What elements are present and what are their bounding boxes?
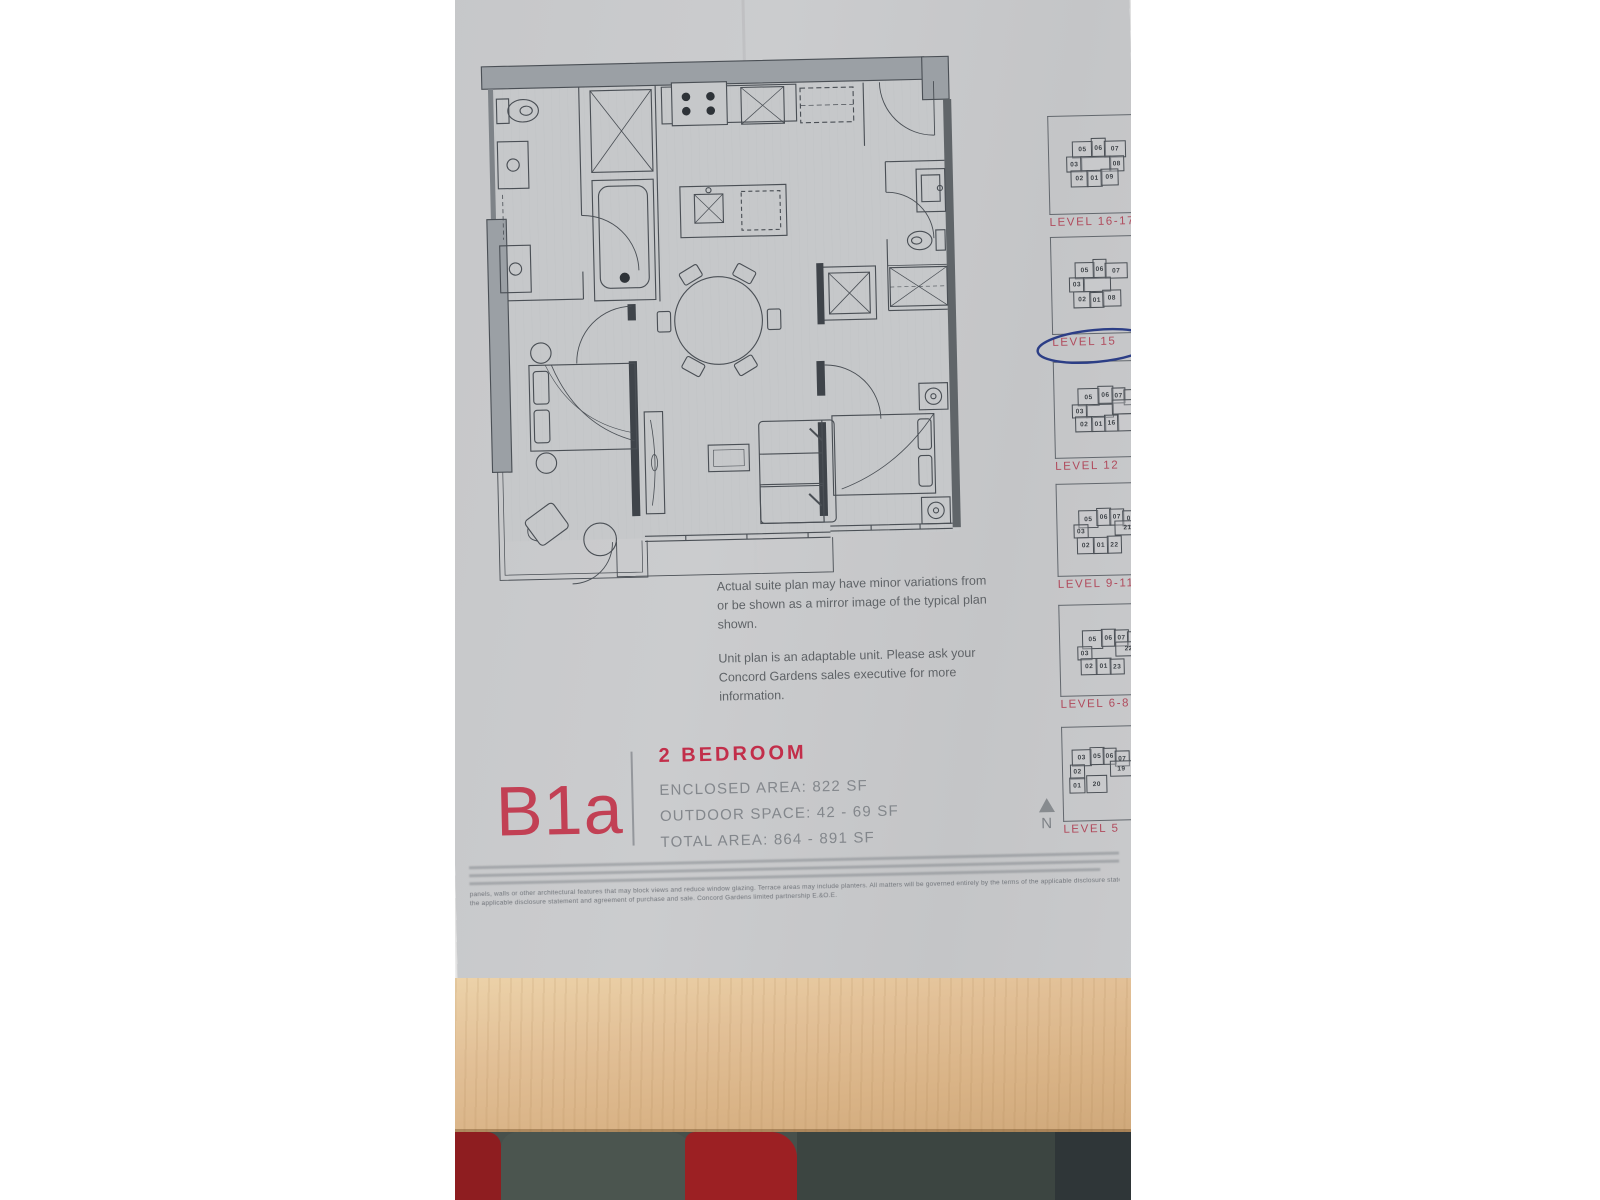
north-arrow-icon bbox=[1039, 798, 1055, 812]
unit-box-21: 21 bbox=[1114, 520, 1131, 536]
floor-plan-drawing bbox=[479, 54, 975, 587]
red-fabric-left bbox=[455, 1132, 501, 1200]
level-diagram-level-6-8: 050607080322020123 bbox=[1058, 603, 1131, 697]
level-diagram-level-15: 05060703020108 bbox=[1050, 235, 1131, 335]
wood-grain bbox=[455, 978, 1131, 1134]
level-label-level-16-17: LEVEL 16-17 bbox=[1049, 215, 1131, 229]
red-fabric-center bbox=[685, 1132, 797, 1200]
unit-box-core bbox=[1117, 413, 1131, 431]
note-adaptable: Unit plan is an adaptable unit. Please a… bbox=[718, 644, 991, 706]
unit-spec-line: TOTAL AREA: 864 - 891 SF bbox=[660, 825, 899, 856]
brochure-page: Actual suite plan may have minor variati… bbox=[455, 0, 1131, 996]
unit-box-19: 19 bbox=[1110, 760, 1131, 777]
unit-box-01: 01 bbox=[1069, 777, 1085, 793]
level-diagram-level-16-17: 0506070308020109 bbox=[1047, 114, 1131, 215]
note-variations: Actual suite plan may have minor variati… bbox=[717, 571, 990, 633]
plan-code: B1a bbox=[495, 774, 624, 847]
north-label: N bbox=[1032, 815, 1062, 833]
level-diagram-level-12: 05060703020116 bbox=[1053, 360, 1131, 459]
unit-info: 2 BEDROOM ENCLOSED AREA: 822 SFOUTDOOR S… bbox=[658, 740, 899, 856]
unit-box-23: 23 bbox=[1110, 658, 1125, 674]
level-diagram-level-9-11: 050607080321020122 bbox=[1056, 482, 1131, 577]
wooden-table-edge bbox=[455, 978, 1131, 1134]
background-below-table bbox=[455, 1132, 1131, 1200]
unit-box-08: 08 bbox=[1102, 289, 1121, 306]
unit-type-heading: 2 BEDROOM bbox=[658, 740, 897, 768]
level-label-level-5: LEVEL 5 bbox=[1063, 823, 1119, 836]
level-diagram-level-5: 0305060702190120 bbox=[1061, 725, 1131, 822]
legal-fine-print: panels, walls or other architectural fea… bbox=[469, 847, 1120, 909]
photo-of-brochure: Actual suite plan may have minor variati… bbox=[455, 0, 1131, 1200]
unit-box-22: 22 bbox=[1107, 535, 1122, 553]
level-label-level-9-11: LEVEL 9-11 bbox=[1058, 577, 1131, 591]
dark-knee-left bbox=[501, 1132, 693, 1200]
unit-box-20: 20 bbox=[1086, 775, 1107, 793]
level-label-level-6-8: LEVEL 6-8 bbox=[1060, 697, 1130, 711]
dark-corner-right bbox=[1055, 1132, 1131, 1200]
unit-box-22: 22 bbox=[1115, 641, 1131, 657]
plan-notes: Actual suite plan may have minor variati… bbox=[717, 571, 992, 722]
level-label-level-12: LEVEL 12 bbox=[1055, 459, 1119, 472]
north-compass: N bbox=[1032, 798, 1063, 833]
stove bbox=[671, 82, 727, 126]
unit-box-09: 09 bbox=[1100, 168, 1118, 185]
screenshot-canvas: Actual suite plan may have minor variati… bbox=[0, 0, 1600, 1200]
level-label-level-15: LEVEL 15 bbox=[1052, 335, 1116, 348]
unit-specs: ENCLOSED AREA: 822 SFOUTDOOR SPACE: 42 -… bbox=[659, 773, 900, 856]
vertical-divider bbox=[630, 752, 634, 846]
